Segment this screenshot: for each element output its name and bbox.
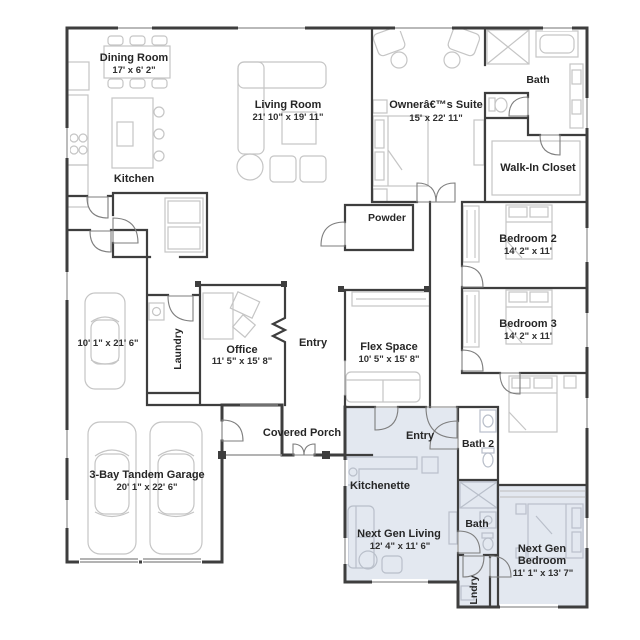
mudroom-bench-icon [165,198,203,252]
kitchen-island-icon [112,98,164,168]
label-office: Office [226,344,257,356]
label-garage: 3-Bay Tandem Garage [89,469,204,481]
label-owners-suite: Ownerâ€™s Suite [389,99,483,111]
label-kitchen: Kitchen [114,173,155,185]
dims-office: 11' 5" x 15' 8" [212,356,273,367]
dims-bedroom2: 14' 2" x 11' [504,246,552,257]
dims-garage: 20' 1" x 22' 6" [116,482,177,493]
label-ng-living: Next Gen Living [357,528,441,540]
label-kitchenette: Kitchenette [350,480,410,492]
label-covered-porch: Covered Porch [263,427,342,439]
label-ng-bedroom-2: Bedroom [518,555,567,567]
label-owners-bath: Bath [526,74,549,86]
label-ng-entry: Entry [406,430,435,442]
label-bedroom3: Bedroom 3 [499,318,556,330]
label-flex-space: Flex Space [360,341,417,353]
office-desk-icon [203,292,260,339]
label-dining-room: Dining Room [100,52,169,64]
dims-bedroom3: 14' 2" x 11' [504,331,552,342]
floor-plan-page: Dining Room 17' x 6' 2" Living Room 21' … [0,0,640,640]
dims-flex-space: 10' 5" x 15' 8" [358,354,419,365]
dims-ng-living: 12' 4" x 11' 6" [370,541,431,552]
washer-dryer-icon [149,303,164,320]
dims-dining-room: 17' x 6' 2" [112,65,155,76]
label-powder: Powder [368,212,406,224]
floor-plan-drawing: Dining Room 17' x 6' 2" Living Room 21' … [0,0,640,640]
label-entry: Entry [299,337,328,349]
dims-garage-bay: 10' 1" x 21' 6" [77,338,138,349]
label-ng-bath: Bath [465,518,488,530]
dims-ng-bedroom: 11' 1" x 13' 7" [513,568,574,579]
kitchen-counter-icon [68,62,89,207]
label-laundry: Laundry [172,328,184,370]
bedroom4-bed-icon [509,376,576,432]
label-bedroom2: Bedroom 2 [499,233,556,245]
dims-living-room: 21' 10" x 19' 11" [252,112,323,123]
label-ng-bedroom-1: Next Gen [518,543,567,555]
label-bath2: Bath 2 [462,438,494,450]
label-lndry: Lndry [468,575,480,604]
label-walk-in-closet: Walk-In Closet [500,162,576,174]
label-living-room: Living Room [255,99,322,111]
dims-owners-suite: 15' x 22' 11" [409,113,462,124]
